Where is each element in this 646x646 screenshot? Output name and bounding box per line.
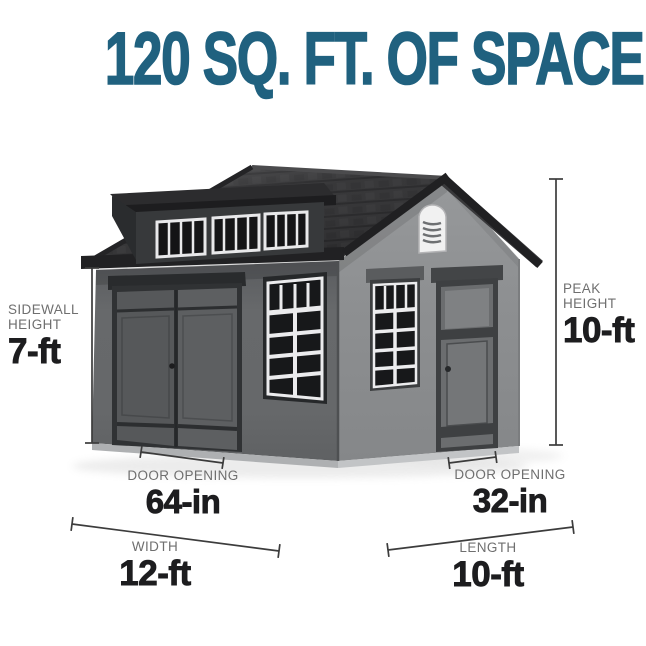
peak-height-annotation: PEAK HEIGHT 10-ft <box>563 281 634 350</box>
end-window <box>366 266 424 391</box>
sidewall-height-annotation: SIDEWALL HEIGHT 7-ft <box>8 302 79 371</box>
roof-dormer <box>110 183 336 264</box>
width-value: 12-ft <box>75 556 235 593</box>
peak-height-label-line1: PEAK <box>563 281 634 296</box>
door-handle <box>445 366 451 372</box>
door-opening-right-label: DOOR OPENING <box>430 467 590 482</box>
shed-infographic: 120 SQ. FT. OF SPACE <box>0 0 646 646</box>
gable-vent-icon <box>419 205 446 253</box>
door-handle <box>169 363 175 369</box>
length-annotation: LENGTH 10-ft <box>408 540 568 594</box>
width-annotation: WIDTH 12-ft <box>75 539 235 593</box>
peak-height-label-line2: HEIGHT <box>563 296 634 311</box>
sidewall-height-label-line2: HEIGHT <box>8 317 79 332</box>
sidewall-height-value: 7-ft <box>8 334 79 371</box>
door-opening-left-label: DOOR OPENING <box>103 468 263 483</box>
peak-height-value: 10-ft <box>563 313 634 350</box>
sidewall-height-label-line1: SIDEWALL <box>8 302 79 317</box>
peak-height-line <box>549 179 563 445</box>
end-door <box>431 265 503 452</box>
width-label: WIDTH <box>75 539 235 554</box>
double-door <box>108 272 246 452</box>
length-label: LENGTH <box>408 540 568 555</box>
length-value: 10-ft <box>408 557 568 594</box>
door-opening-right-value: 32-in <box>430 484 590 519</box>
door-opening-left-value: 64-in <box>103 485 263 520</box>
door-opening-left-annotation: DOOR OPENING 64-in <box>103 468 263 520</box>
door-opening-right-annotation: DOOR OPENING 32-in <box>430 467 590 519</box>
side-window <box>263 272 327 404</box>
